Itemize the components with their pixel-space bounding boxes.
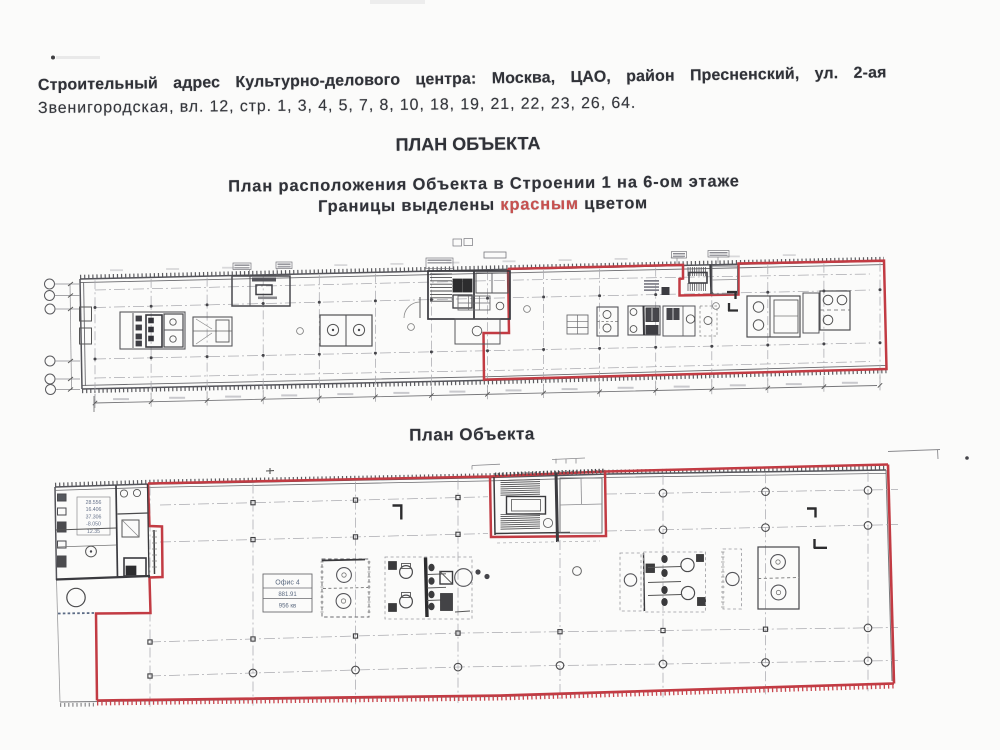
svg-text:-8.050: -8.050 — [86, 522, 101, 528]
svg-text:Офис 4: Офис 4 — [275, 580, 300, 587]
svg-text:37.306: 37.306 — [86, 514, 102, 520]
svg-text:12.35: 12.35 — [87, 529, 100, 535]
svg-text:956 кв: 956 кв — [279, 604, 297, 610]
svg-text:28.556: 28.556 — [86, 500, 102, 506]
svg-text:881.91: 881.91 — [278, 592, 297, 598]
svg-text:16.406: 16.406 — [86, 507, 102, 513]
